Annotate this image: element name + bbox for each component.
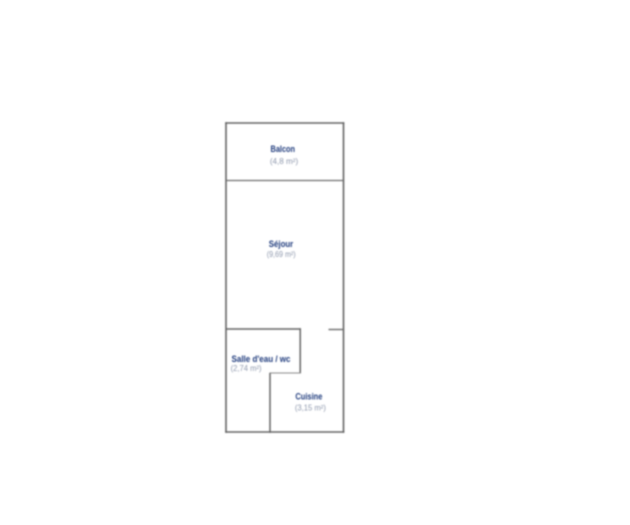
svg-text:Salle d'eau / wc: Salle d'eau / wc	[232, 354, 291, 364]
svg-text:Balcon: Balcon	[271, 144, 296, 154]
svg-text:(9,69 m²): (9,69 m²)	[267, 250, 296, 259]
svg-text:Séjour: Séjour	[269, 239, 294, 249]
svg-text:Cuisine: Cuisine	[295, 392, 322, 402]
svg-text:(2,74 m²): (2,74 m²)	[231, 364, 262, 373]
svg-text:(3,15 m²): (3,15 m²)	[295, 403, 326, 412]
svg-text:(4,8 m²): (4,8 m²)	[270, 157, 299, 166]
